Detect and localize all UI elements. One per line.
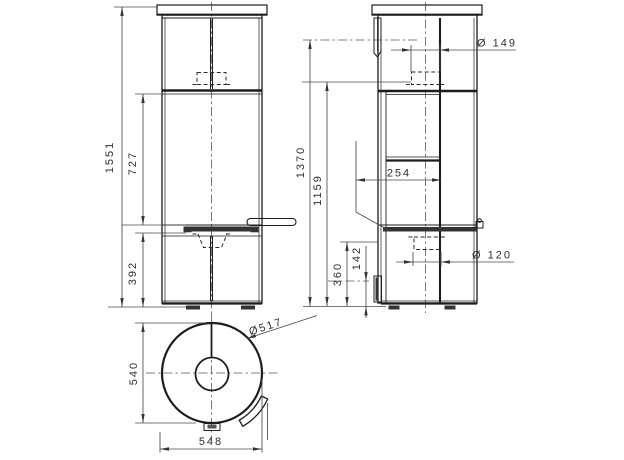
- dim-compartment-depth: 254: [387, 168, 411, 180]
- dim-body-diameter: Ø517: [248, 316, 285, 338]
- dim-mid-height: 727: [127, 151, 139, 175]
- dim-flue-bottom-height: 1159: [312, 174, 324, 206]
- front-view: [157, 2, 296, 313]
- top-flue-collar: [196, 358, 229, 391]
- dim-overall-width: 548: [199, 436, 223, 448]
- dim-rear-outlet-center-height: 360: [332, 262, 344, 286]
- dim-rear-outlet-offset: 142: [351, 246, 363, 270]
- side-dimensions: 1370 1159 360 142 254 Ø 149 Ø 120: [295, 38, 517, 319]
- technical-drawing-page: 1551 727 392: [0, 0, 624, 460]
- top-dimensions: 540 548 Ø517: [128, 316, 317, 453]
- dim-overall-height: 1551: [104, 141, 116, 173]
- dim-base-height: 392: [127, 261, 139, 285]
- side-view: [372, 2, 483, 313]
- dim-rear-outlet-diameter: Ø 120: [472, 250, 512, 262]
- dim-flue-diameter: Ø 149: [477, 38, 517, 50]
- front-handle: [247, 219, 296, 226]
- dim-depth: 540: [128, 361, 140, 385]
- front-dimensions: 1551 727 392: [104, 7, 186, 307]
- stove-dimension-drawing: 1551 727 392: [0, 0, 624, 460]
- dim-flue-center-height: 1370: [295, 146, 307, 178]
